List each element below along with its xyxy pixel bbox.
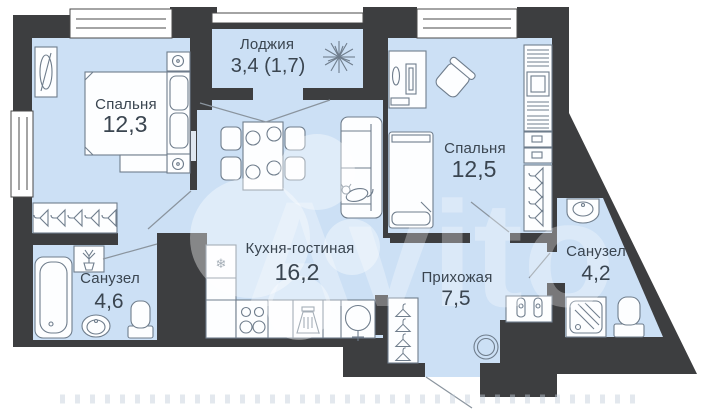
pillow: [170, 113, 188, 148]
label-kitchen-area: 16,2: [275, 259, 320, 285]
opening-loggia-door: [253, 88, 303, 101]
wall-tab-right-of-loggia: [363, 7, 417, 38]
label-bathroom-2-area: 4,2: [581, 262, 610, 285]
wall-tab-left-of-loggia: [170, 7, 217, 38]
toilet-icon: [128, 301, 153, 338]
label-bathroom-2-name: Санузел: [566, 243, 626, 260]
opening-entrance-door: [425, 361, 480, 377]
opening-bathroom-1-door: [118, 233, 157, 245]
window-bedroom-1-top: [70, 9, 172, 38]
wardrobe-hanger-row: [33, 203, 117, 233]
bench-icon: [120, 155, 167, 172]
label-loggia-name: Лоджия: [240, 36, 294, 53]
label-bathroom-1-area: 4,6: [94, 290, 123, 313]
wall-tab-top-right: [517, 7, 569, 38]
label-loggia-area: 3,4 (1,7): [231, 55, 305, 77]
washbasin-icon: [82, 315, 110, 337]
window-bedroom-2-top: [417, 9, 517, 38]
chair-icon: [221, 127, 241, 150]
mirror-wardrobe-icon: [35, 47, 57, 97]
nightstand-icon: [167, 154, 190, 173]
bathtub-icon: [35, 257, 72, 338]
desk-icon: [389, 51, 426, 108]
chair-icon: [221, 157, 241, 180]
drawer-unit-icon: [524, 132, 552, 163]
label-bedroom-1-area: 12,3: [103, 111, 148, 137]
label-hallway-area: 7,5: [441, 287, 470, 310]
label-bedroom-2-name: Спальня: [444, 140, 506, 157]
floor-plan: ❄: [0, 0, 720, 411]
floor-kitchen-north: [212, 100, 383, 112]
window-bedroom-1-left: [11, 111, 33, 197]
label-kitchen-name: Кухня-гостиная: [246, 240, 355, 257]
window-loggia-glazing: [210, 13, 365, 29]
toilet-icon: [614, 297, 644, 337]
shelf-with-plant-icon: [74, 246, 104, 272]
wardrobe-shelves-icon: [524, 45, 552, 131]
nightstand-icon: [167, 52, 190, 71]
floor-plan-canvas: ❄: [0, 0, 720, 411]
tv-icon: [191, 131, 196, 161]
label-bedroom-2-area: 12,5: [452, 156, 497, 182]
pillow: [170, 76, 188, 110]
label-bathroom-1-name: Санузел: [80, 270, 140, 287]
label-hallway-name: Прихожая: [421, 269, 492, 286]
